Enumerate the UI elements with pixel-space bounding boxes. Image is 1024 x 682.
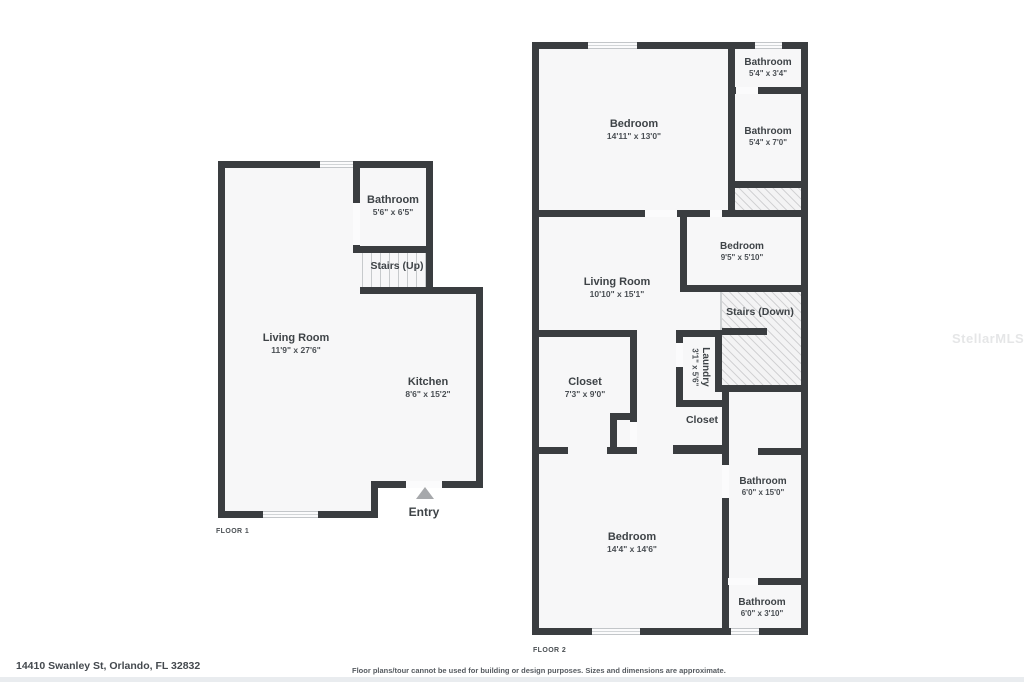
room-name: Closet (686, 414, 718, 426)
wall (735, 181, 801, 188)
room-dims: 10'10" x 15'1" (584, 289, 651, 300)
window (588, 42, 637, 49)
room-dims: 6'0" x 3'10" (738, 608, 785, 619)
door-opening (645, 210, 677, 217)
room-label-bathroom3: Bathroom 6'0" x 15'0" (739, 476, 786, 498)
wall (532, 628, 808, 635)
room-label-laundry: Laundry 3'1" x 5'6" (689, 347, 711, 386)
door-opening (676, 343, 683, 367)
room-label-living-f2: Living Room 10'10" x 15'1" (584, 276, 651, 300)
room-dims: 5'4" x 7'0" (744, 137, 791, 148)
window (731, 628, 759, 635)
room-name: Bathroom (739, 476, 786, 488)
room-label-bathroom-f1: Bathroom 5'6" x 6'5" (367, 194, 419, 218)
door-opening (736, 87, 758, 94)
room-name: Kitchen (405, 376, 450, 389)
door-opening (728, 578, 758, 585)
wall (676, 330, 683, 407)
room-name: Laundry (700, 347, 712, 386)
room-label-stairs-up: Stairs (Up) (370, 260, 423, 272)
room-dims: 9'5" x 5'10" (720, 252, 764, 263)
wall (680, 210, 687, 292)
room-name: Bedroom (720, 241, 764, 253)
wall (630, 330, 637, 422)
wall (680, 285, 808, 292)
room-label-closet2: Closet (686, 414, 718, 426)
window (320, 161, 353, 168)
door-opening (722, 465, 729, 498)
room-name: Living Room (584, 276, 651, 289)
wall (715, 330, 722, 392)
room-name: Bathroom (738, 597, 785, 609)
room-name: Bedroom (607, 118, 661, 131)
room-dims: 11'9" x 27'6" (263, 345, 330, 356)
wall (607, 447, 637, 454)
door-opening (353, 203, 360, 245)
wall (532, 330, 637, 337)
room-dims: 8'6" x 15'2" (405, 389, 450, 400)
wall (758, 448, 801, 455)
room-name: Bathroom (744, 126, 791, 138)
room-label-bedroom2: Bedroom 9'5" x 5'10" (720, 241, 764, 263)
door-opening (630, 422, 637, 447)
stellar-mls-watermark: StellarMLS (952, 331, 1024, 346)
wall (476, 287, 483, 488)
room-name: Stairs (Up) (370, 260, 423, 272)
room-label-stairs-down: Stairs (Down) (726, 306, 794, 318)
window (592, 628, 640, 635)
wall (371, 485, 378, 518)
door-opening (710, 210, 722, 217)
wall (715, 385, 808, 392)
wall (353, 246, 433, 253)
room-name: Bedroom (607, 531, 657, 544)
room-label-bedroom1: Bedroom 14'11" x 13'0" (607, 118, 661, 142)
room-name: Closet (565, 376, 605, 389)
wall (360, 287, 483, 294)
floor-plan-canvas: Bathroom 5'6" x 6'5" Stairs (Up) Living … (0, 0, 1024, 682)
room-label-bedroom3: Bedroom 14'4" x 14'6" (607, 531, 657, 555)
room-label-closet1: Closet 7'3" x 9'0" (565, 376, 605, 400)
room-dims: 14'4" x 14'6" (607, 544, 657, 555)
room-label-bathroom2: Bathroom 5'4" x 7'0" (744, 126, 791, 148)
wall (426, 161, 433, 294)
room-dims: 7'3" x 9'0" (565, 389, 605, 400)
room-dims: 5'4" x 3'4" (744, 68, 791, 79)
floor1-tag: FLOOR 1 (216, 528, 249, 535)
room-label-bathroom4: Bathroom 6'0" x 3'10" (738, 597, 785, 619)
room-name: Bathroom (367, 194, 419, 207)
window (755, 42, 782, 49)
room-dims: 6'0" x 15'0" (739, 487, 786, 498)
wall (722, 328, 767, 335)
room-dims: 14'11" x 13'0" (607, 131, 661, 142)
wall (676, 400, 722, 407)
entry-label: Entry (409, 505, 440, 519)
wall (801, 42, 808, 635)
stairwell-hatch-upper (735, 188, 801, 210)
property-address: 14410 Swanley St, Orlando, FL 32832 (16, 660, 200, 672)
bottom-strip (0, 677, 1024, 682)
wall (218, 161, 225, 518)
room-dims: 3'1" x 5'6" (689, 347, 700, 386)
room-name: Living Room (263, 332, 330, 345)
floor2-tag: FLOOR 2 (533, 647, 566, 654)
wall (673, 445, 728, 454)
room-name: Bathroom (744, 57, 791, 69)
wall (532, 42, 539, 635)
room-label-living-f1: Living Room 11'9" x 27'6" (263, 332, 330, 356)
entry-arrow-icon (416, 487, 434, 499)
window (263, 511, 318, 518)
wall (728, 42, 735, 217)
room-label-kitchen: Kitchen 8'6" x 15'2" (405, 376, 450, 400)
room-name: Stairs (Down) (726, 306, 794, 318)
wall (532, 447, 568, 454)
room-dims: 5'6" x 6'5" (367, 207, 419, 218)
room-label-bathroom1: Bathroom 5'4" x 3'4" (744, 57, 791, 79)
disclaimer-text: Floor plans/tour cannot be used for buil… (352, 666, 726, 675)
wall (610, 413, 637, 420)
wall (722, 392, 729, 635)
